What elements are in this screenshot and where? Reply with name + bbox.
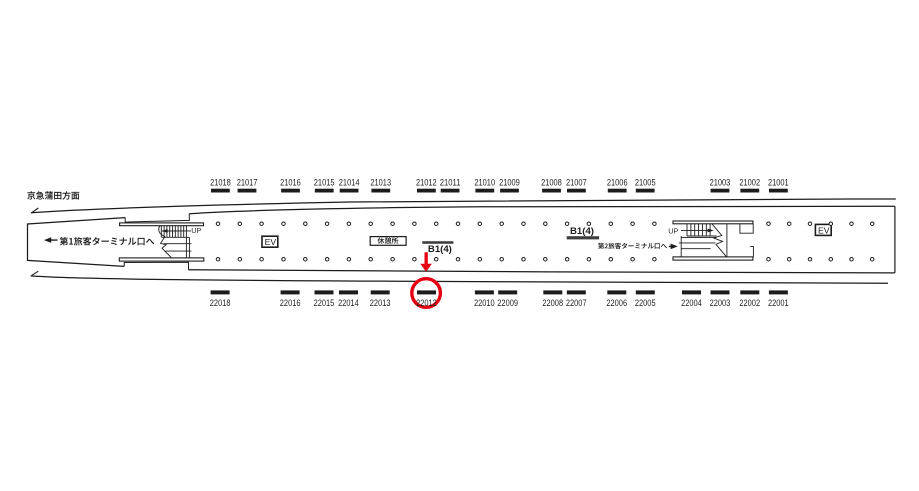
svg-text:21015: 21015 — [314, 177, 335, 188]
svg-text:22001: 22001 — [768, 298, 789, 309]
svg-text:22013: 22013 — [370, 298, 391, 309]
svg-text:22002: 22002 — [739, 298, 760, 309]
svg-text:22010: 22010 — [474, 298, 495, 309]
svg-text:21011: 21011 — [440, 177, 461, 188]
svg-text:21001: 21001 — [768, 177, 789, 188]
svg-text:EV: EV — [818, 225, 830, 235]
svg-text:EV: EV — [265, 237, 277, 247]
svg-text:22018: 22018 — [210, 298, 231, 309]
svg-text:UP: UP — [668, 226, 678, 235]
svg-text:B1(4): B1(4) — [570, 226, 594, 237]
svg-text:22015: 22015 — [314, 298, 335, 309]
svg-text:22016: 22016 — [280, 298, 301, 309]
svg-text:22009: 22009 — [497, 298, 518, 309]
svg-text:21003: 21003 — [710, 177, 731, 188]
svg-text:21012: 21012 — [416, 177, 437, 188]
svg-text:UP: UP — [191, 226, 201, 235]
svg-text:21014: 21014 — [339, 177, 360, 188]
svg-text:21016: 21016 — [280, 177, 301, 188]
svg-text:21007: 21007 — [566, 177, 587, 188]
svg-text:22012: 22012 — [416, 298, 437, 309]
svg-text:22004: 22004 — [681, 298, 702, 309]
svg-text:21018: 21018 — [210, 177, 231, 188]
svg-text:21009: 21009 — [499, 177, 520, 188]
svg-text:21010: 21010 — [474, 177, 495, 188]
svg-text:22006: 22006 — [606, 298, 627, 309]
svg-text:21017: 21017 — [237, 177, 258, 188]
svg-text:22003: 22003 — [710, 298, 731, 309]
svg-text:22007: 22007 — [566, 298, 587, 309]
svg-text:21008: 21008 — [541, 177, 562, 188]
svg-text:21006: 21006 — [607, 177, 628, 188]
svg-text:21002: 21002 — [739, 177, 760, 188]
svg-text:B1(4): B1(4) — [428, 244, 452, 255]
svg-text:22008: 22008 — [542, 298, 563, 309]
svg-text:21013: 21013 — [370, 177, 391, 188]
svg-text:22014: 22014 — [338, 298, 359, 309]
svg-text:21005: 21005 — [635, 177, 656, 188]
svg-text:22005: 22005 — [635, 298, 656, 309]
